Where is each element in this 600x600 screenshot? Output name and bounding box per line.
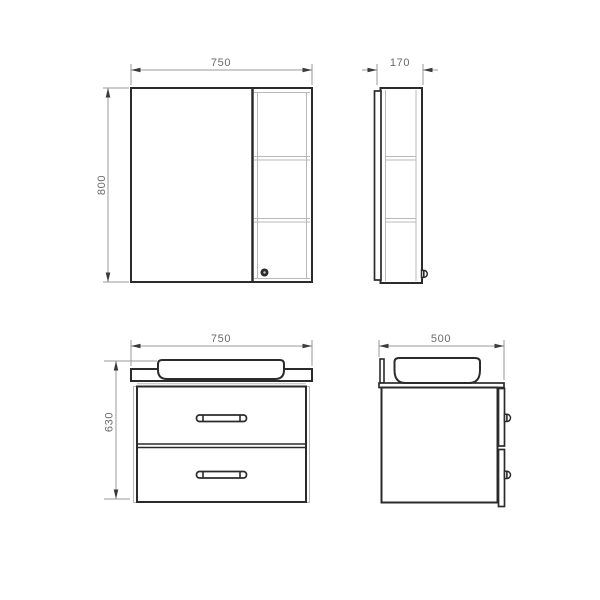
door-knob-highlight	[263, 271, 265, 273]
arrowhead	[114, 361, 119, 371]
dimension-label: 170	[390, 57, 410, 69]
dimension-label: 800	[96, 175, 108, 195]
drawer-handle	[197, 472, 247, 479]
dimension-label: 500	[431, 333, 451, 345]
drawing-sheet: 750 800	[0, 0, 600, 600]
dimension-label: 630	[104, 412, 116, 432]
cabinet-body-side	[382, 388, 498, 503]
dimension-label: 750	[211, 57, 231, 69]
drawer-handle	[197, 415, 247, 422]
washbasin-side	[395, 358, 481, 383]
arrowhead	[379, 344, 389, 349]
height-dimension: 800	[96, 88, 129, 282]
arrowhead	[368, 68, 378, 73]
dimension-label: 750	[211, 333, 231, 345]
handle-bar	[197, 472, 247, 479]
depth-dimension: 170	[362, 57, 438, 85]
technical-drawing-canvas: 750 800	[0, 0, 600, 600]
arrowhead	[114, 490, 119, 500]
arrowhead	[303, 68, 313, 73]
width-dimension: 750	[131, 57, 312, 85]
cabinet-body-outline	[131, 88, 312, 282]
mirror-panel-edge	[375, 91, 382, 280]
arrowhead	[131, 344, 141, 349]
washbasin	[158, 360, 284, 379]
drawer-front-edge	[499, 389, 505, 447]
arrowhead	[423, 68, 433, 73]
arrowhead	[106, 88, 111, 98]
arrowhead	[106, 273, 111, 283]
arrowhead	[131, 68, 141, 73]
vanity-front-view: 750 630	[104, 333, 313, 503]
vanity-side-view: 500	[379, 333, 510, 507]
mirror-cabinet-side-view: 170	[362, 57, 438, 283]
wall-bracket	[380, 359, 384, 383]
drawer-front-edge	[499, 450, 505, 507]
arrowhead	[495, 344, 505, 349]
arrowhead	[303, 344, 313, 349]
mirror-cabinet-front-view: 750 800	[96, 57, 312, 282]
handle-bar	[197, 415, 247, 422]
